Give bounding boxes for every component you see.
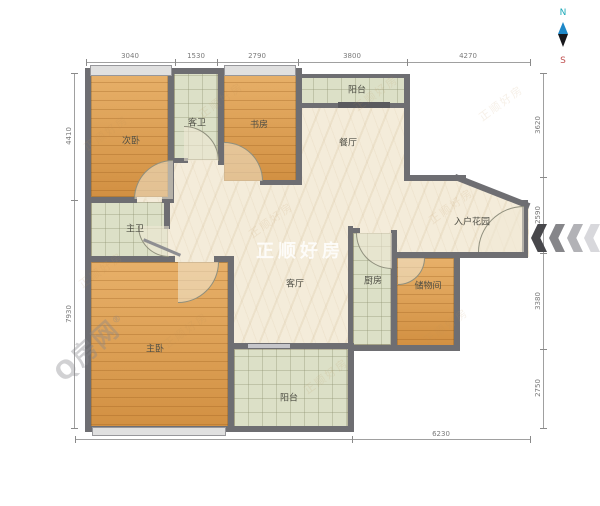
room-label-storage: 储物间	[414, 279, 441, 292]
entry-arrow-icon	[549, 224, 565, 252]
dim-tick	[540, 73, 547, 74]
dim-right-2: 2590	[534, 206, 542, 224]
wall	[260, 180, 302, 185]
room-label-kitchen: 厨房	[364, 274, 382, 287]
dim-tick	[540, 428, 547, 429]
window	[224, 65, 296, 76]
room-label-entry-garden: 入户花园	[454, 215, 490, 228]
dim-bottom-2: 6230	[432, 430, 450, 438]
room-label-master-bathroom: 主卫	[126, 222, 144, 235]
dim-left-2: 7930	[65, 305, 73, 323]
room-label-living: 客厅	[286, 277, 304, 290]
wall	[85, 197, 137, 203]
watermark-tiled: 正顺好房	[475, 81, 526, 125]
dimension-line-bottom	[75, 439, 530, 440]
dim-tick	[71, 200, 78, 201]
wall	[348, 345, 460, 351]
dim-tick	[86, 59, 87, 66]
wall	[348, 343, 354, 432]
wall	[454, 252, 460, 351]
room-balcony-bottom	[234, 349, 348, 427]
sliding-door-track	[248, 344, 290, 348]
wall	[348, 226, 353, 351]
compass-south-label: S	[560, 56, 566, 66]
dim-tick	[71, 428, 78, 429]
dim-top-2: 1530	[187, 52, 205, 60]
compass: N S	[548, 8, 578, 66]
wall	[164, 197, 170, 229]
dim-top-3: 2790	[248, 52, 266, 60]
dim-tick	[540, 253, 547, 254]
dim-top-5: 4270	[459, 52, 477, 60]
compass-needle-north-icon	[558, 22, 568, 34]
room-label-dining: 餐厅	[339, 136, 357, 149]
wall	[228, 343, 354, 349]
window	[92, 427, 226, 436]
dim-tick	[530, 59, 531, 66]
wall	[404, 74, 410, 181]
room-label-balcony-bottom: 阳台	[280, 391, 298, 404]
room-label-study: 书房	[250, 118, 268, 131]
dim-tick	[298, 59, 299, 66]
entry-arrow-icon	[584, 224, 600, 252]
wall	[296, 68, 302, 185]
compass-north-label: N	[560, 8, 567, 18]
compass-needle-south-icon	[558, 34, 568, 47]
dim-tick	[352, 436, 353, 443]
dim-top-4: 3800	[343, 52, 361, 60]
wall	[228, 426, 354, 432]
room-label-master-bedroom: 主卧	[146, 342, 164, 355]
entry-arrow-icon	[567, 224, 583, 252]
dim-tick	[540, 349, 547, 350]
wall	[85, 68, 91, 432]
dim-right-4: 2750	[534, 379, 542, 397]
dimension-line-top	[86, 62, 530, 63]
dim-tick	[175, 59, 176, 66]
dim-right-3: 3380	[534, 292, 542, 310]
floor-plan-canvas: 次卧 客卫 书房 阳台 餐厅 入户花园 主卫 客厅 厨房 储物间 主卧 阳台 3…	[0, 0, 600, 506]
room-label-secondary-bedroom: 次卧	[122, 134, 140, 147]
dim-tick	[530, 436, 531, 443]
entry-arrow-icon	[531, 224, 547, 252]
dim-tick	[540, 177, 547, 178]
dim-right-1: 3620	[534, 116, 542, 134]
dim-tick	[217, 59, 218, 66]
dim-left-1: 4410	[65, 127, 73, 145]
dim-top-1: 3040	[121, 52, 139, 60]
dim-tick	[71, 73, 78, 74]
dim-tick	[407, 59, 408, 66]
window	[90, 65, 172, 76]
dim-tick	[75, 436, 76, 443]
watermark-center: 正顺好房	[256, 237, 344, 263]
